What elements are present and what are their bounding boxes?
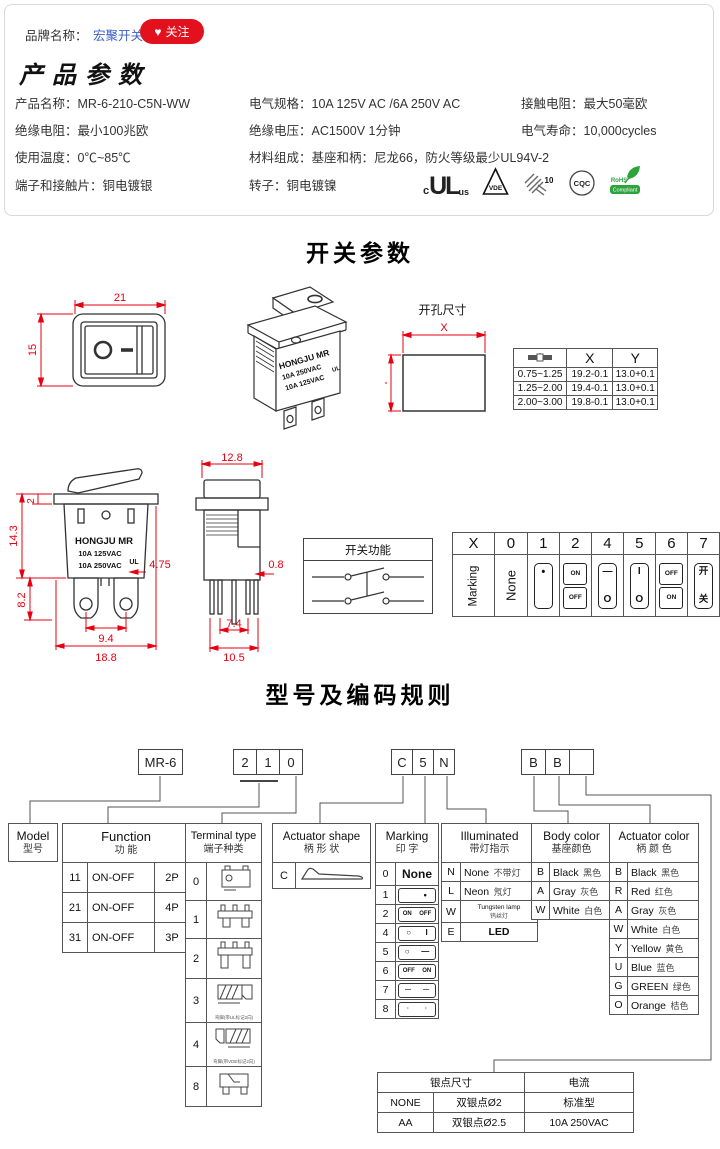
terminal-drawing-4 (210, 1025, 258, 1055)
terminal-row: 8 (186, 1067, 262, 1107)
cert-icons-row: c UL us VDE 10 CQC R (423, 163, 643, 197)
cutout-row: 0.75~1.2519.2-0.113.0+0.1 (514, 368, 658, 382)
svg-text:Y: Y (385, 379, 390, 387)
marking-row: 2 ONOFF (376, 905, 439, 924)
terminal-drawing-3 (210, 981, 258, 1011)
svg-text:HONGJU MR: HONGJU MR (75, 536, 133, 547)
cutout-drawing: X Y (385, 313, 500, 413)
function-table: Function 功 能 11 ON-OFF 2P 21 ON-OFF 4P 3… (62, 823, 190, 953)
marking-row: 5 ○— (376, 943, 439, 962)
actuator-color-row: B Black 黑色 (610, 863, 699, 882)
svg-text:10: 10 (545, 176, 554, 185)
marking-row: 7 —— (376, 981, 439, 1000)
svg-text:7.4: 7.4 (226, 618, 241, 630)
svg-text:RoHS: RoHS (611, 178, 627, 184)
svg-text:4.75: 4.75 (149, 559, 170, 571)
terminal-row: 0 (186, 863, 262, 901)
svg-text:12.8: 12.8 (221, 452, 242, 464)
actuator-color-row: U Blue 蓝色 (610, 958, 699, 977)
svg-text:VDE: VDE (489, 185, 503, 192)
terminal-type-table: Terminal type 端子种类 0 1 2 3 (185, 823, 262, 1107)
vde-cert-icon: VDE (482, 167, 509, 197)
function-code-underline (240, 780, 278, 782)
terminal-row: 4 弯脚(带VDE标记2向) (186, 1023, 262, 1067)
svg-text:21: 21 (114, 292, 126, 304)
marking-row: 6 OFFON (376, 962, 439, 981)
marking-row: 0 None (376, 863, 439, 886)
body-color-row: B Black 黑色 (532, 863, 612, 882)
circuit-diagram (304, 561, 432, 613)
svg-text:Compliant: Compliant (613, 188, 638, 194)
svg-text:14.3: 14.3 (8, 525, 20, 546)
svg-text:8.2: 8.2 (16, 592, 28, 607)
switch-function-box: 开关功能 (303, 538, 433, 614)
silver-row: AA 双银点Ø2.5 10A 250VAC (378, 1113, 634, 1133)
param-insulation-voltage: 绝缘电压：AC1500V 1分钟 (249, 120, 400, 139)
cutout-table: X Y 0.75~1.2519.2-0.113.0+0.1 1.25~2.001… (513, 348, 658, 410)
actuator-profile-drawing (298, 863, 368, 883)
illuminated-row: E LED (442, 923, 538, 942)
terminal-row: 1 (186, 901, 262, 939)
function-row: 21 ON-OFF 4P (63, 893, 190, 923)
marking-row: 8 ·· (376, 1000, 439, 1019)
svg-text:18.8: 18.8 (95, 652, 116, 664)
marking-glyph-dot: • (534, 563, 553, 609)
actuator-color-row: A Gray 灰色 (610, 901, 699, 920)
section-title-coding: 型号及编码规则 (0, 676, 720, 710)
param-operating-temp: 使用温度：0℃~85℃ (15, 147, 131, 166)
silver-row: NONE 双银点Ø2 标准型 (378, 1093, 634, 1113)
param-rotor-plating: 转子：铜电镀镍 (249, 175, 337, 194)
marking-glyph-dash-o: —O (598, 563, 617, 609)
section-title-product-params: 产品参数 (19, 55, 151, 90)
product-detail-page: 品牌名称： 宏聚开关 ♥ 关注 产品参数 产品名称：MR-6-210-C5N-W… (0, 0, 720, 1149)
actuator-color-row: O Orange 桔色 (610, 996, 699, 1015)
section-title-switch-params: 开关参数 (0, 234, 720, 268)
function-row: 11 ON-OFF 2P (63, 863, 190, 893)
illuminated-table: Illuminated 带灯指示 N None 不带灯 L Neon 氖灯 W … (441, 823, 538, 942)
actuator-color-table: Actuator color 柄 颜 色 B Black 黑色 R Red 红色… (609, 823, 699, 1015)
svg-text:10A 250VAC: 10A 250VAC (78, 561, 122, 570)
marking-print-table: Marking 印 字 0 None 1 • 2 ONOFF 4 ○I 5 ○—… (375, 823, 439, 1019)
marking-row: 1 • (376, 886, 439, 905)
front-view-drawing: 21 15 (25, 292, 180, 400)
product-params-card: 品牌名称： 宏聚开关 ♥ 关注 产品参数 产品名称：MR-6-210-C5N-W… (4, 4, 714, 216)
svg-text:0.8: 0.8 (268, 559, 283, 571)
code-box-function-digits: 2 1 0 (234, 749, 303, 775)
actuator-shape-row: C (273, 863, 371, 889)
body-color-row: A Gray 灰色 (532, 882, 612, 901)
code-box-actuator: C 5 N (392, 749, 455, 775)
svg-text:X: X (440, 322, 448, 334)
code-box-model: MR-6 (138, 749, 183, 775)
follow-label: 关注 (166, 23, 190, 40)
svg-text:UL: UL (129, 559, 139, 566)
param-terminal-plating: 端子和接触片：铜电镀银 (15, 175, 153, 194)
function-row: 31 ON-OFF 3P (63, 923, 190, 953)
cutout-row: 2.00~3.0019.8-0.113.0+0.1 (514, 396, 658, 410)
follow-button[interactable]: ♥ 关注 (140, 19, 204, 44)
terminal-drawing-2 (210, 940, 258, 972)
model-box: Model 型号 (8, 823, 58, 862)
param-electrical-rating: 电气规格：10A 125V AC /6A 250V AC (249, 93, 460, 112)
terminal-row: 3 弯脚(带UL标记2向) (186, 979, 262, 1023)
dimensioned-side-drawing: 12.8 0.8 7.4 10.5 (172, 452, 284, 664)
marking-code-table: X 0 1 2 4 5 6 7 Marking None • ONOFF —O … (452, 532, 720, 617)
actuator-color-row: Y Yellow 黄色 (610, 939, 699, 958)
actuator-color-row: G GREEN 绿色 (610, 977, 699, 996)
ul-cert-icon: c UL us (423, 176, 469, 197)
cutout-row: 1.25~2.0019.4-0.113.0+0.1 (514, 382, 658, 396)
enec-cert-icon: 10 (522, 169, 555, 197)
marking-glyph-on-off: ONOFF (560, 563, 591, 609)
illuminated-row: W Tungsten lamp钨丝灯 (442, 901, 538, 923)
marking-glyph-cn: 开关 (694, 563, 713, 609)
svg-text:2: 2 (26, 498, 37, 504)
cqc-cert-icon: CQC (568, 169, 596, 197)
marking-row: 4 ○I (376, 924, 439, 943)
code-box-colors: B B (522, 749, 594, 775)
actuator-color-row: W White 白色 (610, 920, 699, 939)
heart-icon: ♥ (154, 26, 161, 38)
illuminated-row: L Neon 氖灯 (442, 882, 538, 901)
silver-point-table: 银点尺寸 电流 NONE 双银点Ø2 标准型 AA 双银点Ø2.5 10A 25… (377, 1072, 634, 1133)
brand-link[interactable]: 宏聚开关 (93, 25, 143, 44)
marking-none: None (503, 570, 518, 602)
marking-glyph-i-o: IO (630, 563, 649, 609)
terminal-row: 2 (186, 939, 262, 979)
param-product-name: 产品名称：MR-6-210-C5N-WW (15, 93, 190, 112)
svg-text:9.4: 9.4 (98, 633, 113, 645)
dimensioned-front-drawing: HONGJU MR 10A 125VAC 10A 250VAC UL 14.3 … (8, 452, 173, 664)
panel-thickness-icon (528, 353, 552, 362)
svg-text:15: 15 (27, 344, 39, 356)
marking-glyph-off-on: OFFON (656, 563, 687, 609)
terminal-drawing-8 (210, 1069, 258, 1099)
rohs-cert-icon: RoHS Compliant (609, 163, 643, 197)
body-color-table: Body color 基座颜色 B Black 黑色 A Gray 灰色 W W… (531, 823, 612, 920)
param-insulation-resistance: 绝缘电阻：最小100兆欧 (15, 120, 148, 139)
svg-text:10.5: 10.5 (223, 652, 244, 664)
brand-label: 品牌名称： (25, 25, 88, 44)
actuator-color-row: R Red 红色 (610, 882, 699, 901)
illuminated-row: N None 不带灯 (442, 863, 538, 882)
actuator-shape-table: Actuator shape 柄 形 状 C (272, 823, 371, 889)
terminal-drawing-1 (210, 902, 258, 932)
terminal-drawing-0 (210, 864, 258, 894)
marking-row-label: Marking (467, 565, 479, 606)
param-contact-resistance: 接触电阻：最大50毫欧 (521, 93, 647, 112)
isometric-view-drawing: HONGJU MR 10A 250VAC 10A 125VAC UL (218, 278, 353, 430)
svg-text:10A 125VAC: 10A 125VAC (78, 549, 122, 558)
body-color-row: W White 白色 (532, 901, 612, 920)
svg-text:CQC: CQC (574, 179, 591, 188)
switch-function-title: 开关功能 (304, 539, 432, 561)
param-electrical-life: 电气寿命：10,000cycles (521, 120, 656, 139)
